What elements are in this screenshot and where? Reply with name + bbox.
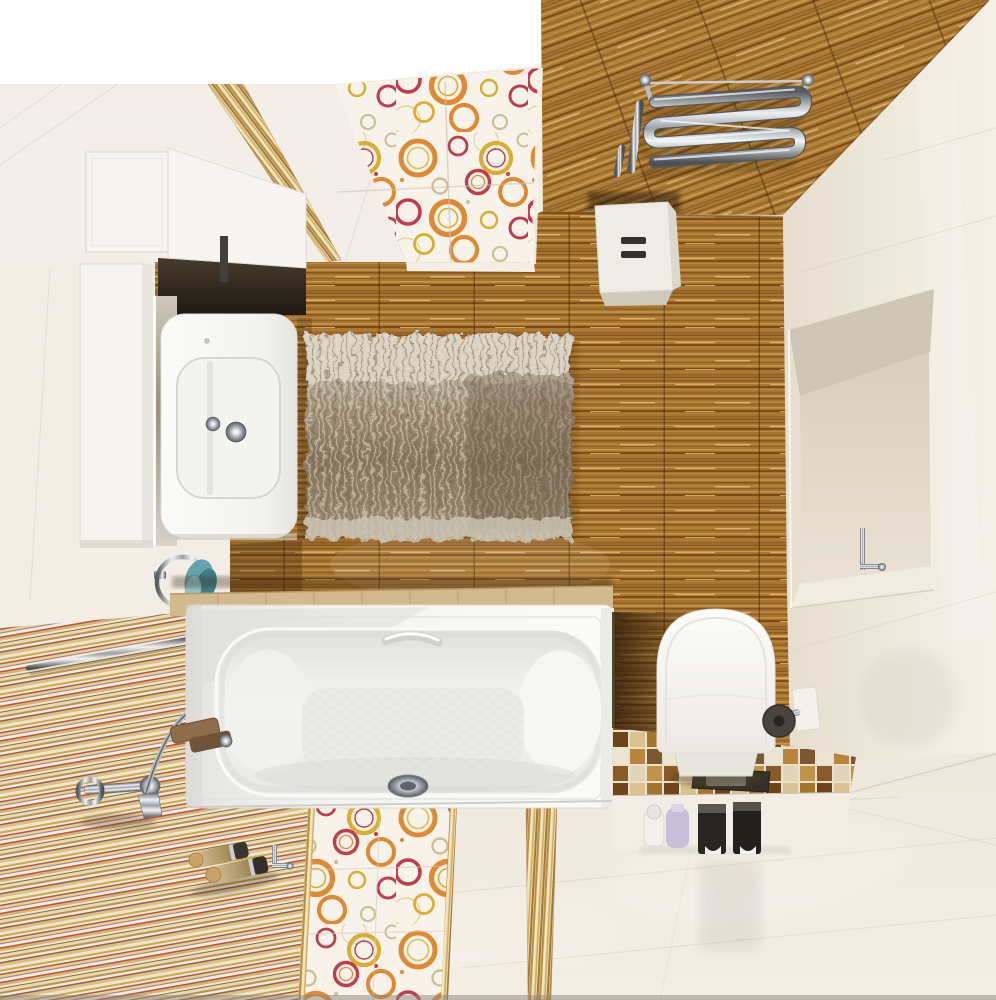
sink-faucet-small	[206, 417, 220, 431]
upper-cabinet-square	[86, 152, 168, 252]
floor-pattern-strip	[303, 804, 453, 1000]
cabinet-handle	[220, 236, 228, 282]
bathtub	[186, 605, 614, 808]
shaggy-rug	[306, 334, 572, 540]
rug-bottom-fringe	[306, 518, 572, 540]
tall-cabinet	[80, 264, 143, 545]
tub-seat	[224, 650, 312, 774]
mirror-edge-highlight	[153, 296, 156, 546]
storage-box	[588, 192, 681, 306]
dispenser-floor-reflection	[700, 860, 760, 950]
wood-shadow-under-sink	[225, 540, 302, 600]
pump-bottle-cap	[647, 805, 661, 819]
lavender-bottle-top	[671, 804, 684, 812]
bracket-horizontal	[272, 863, 289, 868]
pattern-trim-bottom	[406, 262, 535, 272]
radiator-riser-2	[617, 148, 622, 174]
bracket-ball	[287, 863, 294, 870]
toilet-floor-reflection	[860, 650, 956, 746]
rug-dark-patch	[468, 374, 572, 532]
toilet-lid	[657, 609, 775, 753]
storage-box-slot-2	[621, 251, 646, 258]
scene-canvas	[0, 0, 996, 1000]
toilet-base	[674, 750, 758, 776]
bottom-edge-strip	[0, 995, 996, 1000]
washbasin	[161, 314, 297, 540]
sink-overflow-dot	[204, 338, 210, 344]
lavender-bottle	[666, 808, 689, 848]
sink-front-shadow	[161, 534, 297, 540]
sink-faucet	[226, 422, 246, 442]
tub-drain-center	[400, 782, 416, 791]
dispenser-2-band	[733, 802, 761, 811]
storage-box-front	[595, 202, 673, 293]
tall-cabinet-shadow	[80, 540, 153, 548]
ledge-shadow	[172, 576, 612, 588]
tub-headrest	[518, 650, 602, 774]
tp-holder-plate	[792, 687, 820, 731]
radiator-mount-left	[639, 74, 651, 86]
dispenser-1-band	[698, 804, 726, 813]
niche	[789, 289, 934, 608]
bathroom-topdown-render: Top-down 3D render of a compact bathroom…	[0, 0, 996, 1000]
white-top-strip	[0, 0, 541, 84]
tall-cabinet-side	[143, 264, 153, 545]
radiator-mount-right	[802, 74, 814, 86]
storage-box-slot-1	[621, 237, 646, 244]
tp-roll-core	[774, 716, 785, 727]
